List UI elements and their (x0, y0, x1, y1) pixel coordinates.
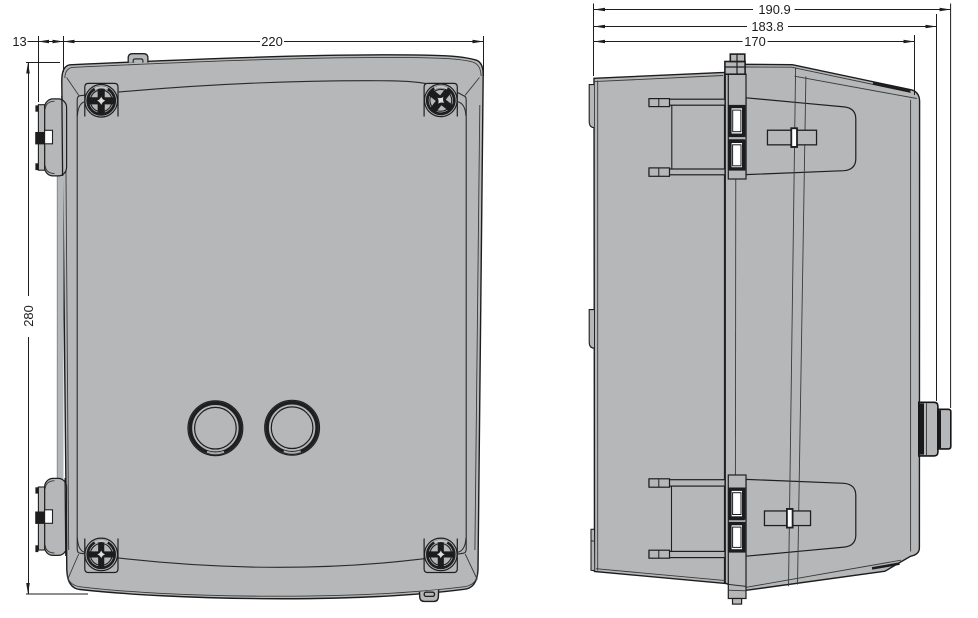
svg-text:190.9: 190.9 (758, 2, 790, 17)
svg-text:220: 220 (261, 34, 283, 49)
svg-text:170: 170 (744, 34, 766, 49)
svg-text:183.8: 183.8 (751, 19, 783, 34)
svg-text:13: 13 (12, 34, 26, 49)
svg-text:280: 280 (21, 305, 36, 327)
